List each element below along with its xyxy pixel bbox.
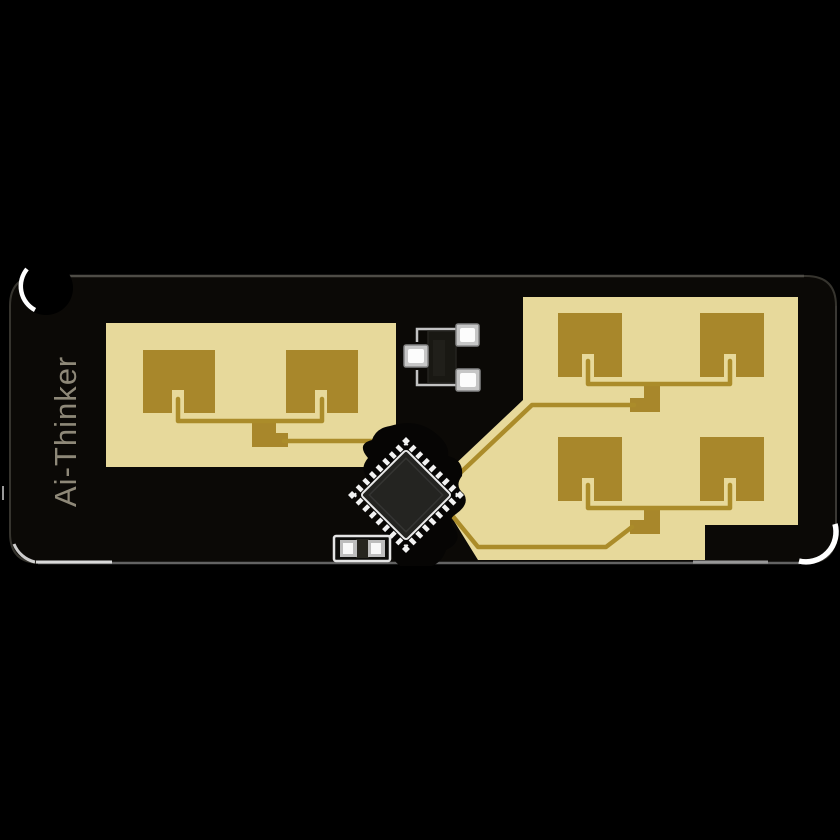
brand: Ai-Thinker	[48, 356, 83, 507]
sot23-body-sheen	[433, 340, 445, 376]
brand-text: Ai-Thinker	[48, 356, 83, 507]
sot23-pad-right-bottom-shine	[460, 373, 476, 387]
pcb-photo: Ai-Thinker	[0, 0, 840, 840]
smd-pad-right-shine	[371, 543, 381, 554]
sot23-pad-right-top-shine	[460, 328, 475, 342]
photo-stage: Ai-Thinker	[0, 0, 840, 840]
sot23-pad-left-shine	[408, 349, 424, 363]
smd-component	[334, 536, 390, 561]
smd-body	[356, 539, 369, 558]
smd-pad-left-shine	[343, 543, 353, 554]
